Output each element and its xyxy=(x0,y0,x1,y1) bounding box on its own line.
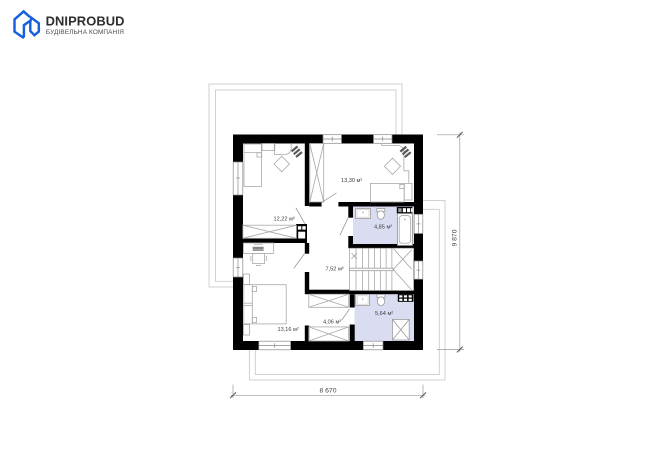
svg-text:4,06 м²: 4,06 м² xyxy=(323,320,341,326)
svg-text:7,52 м²: 7,52 м² xyxy=(326,266,344,272)
svg-text:8 670: 8 670 xyxy=(319,387,336,394)
svg-text:9 870: 9 870 xyxy=(451,229,458,246)
svg-text:БУДІВЕЛЬНА КОМПАНІЯ: БУДІВЕЛЬНА КОМПАНІЯ xyxy=(46,29,124,36)
svg-text:4,85 м²: 4,85 м² xyxy=(374,225,392,231)
svg-text:13,30 м²: 13,30 м² xyxy=(341,178,362,184)
svg-text:5,64 м²: 5,64 м² xyxy=(375,311,393,317)
svg-text:DNIPROBUD: DNIPROBUD xyxy=(46,13,125,28)
svg-text:13,16 м²: 13,16 м² xyxy=(278,327,299,333)
svg-text:12,22 м²: 12,22 м² xyxy=(274,217,295,223)
